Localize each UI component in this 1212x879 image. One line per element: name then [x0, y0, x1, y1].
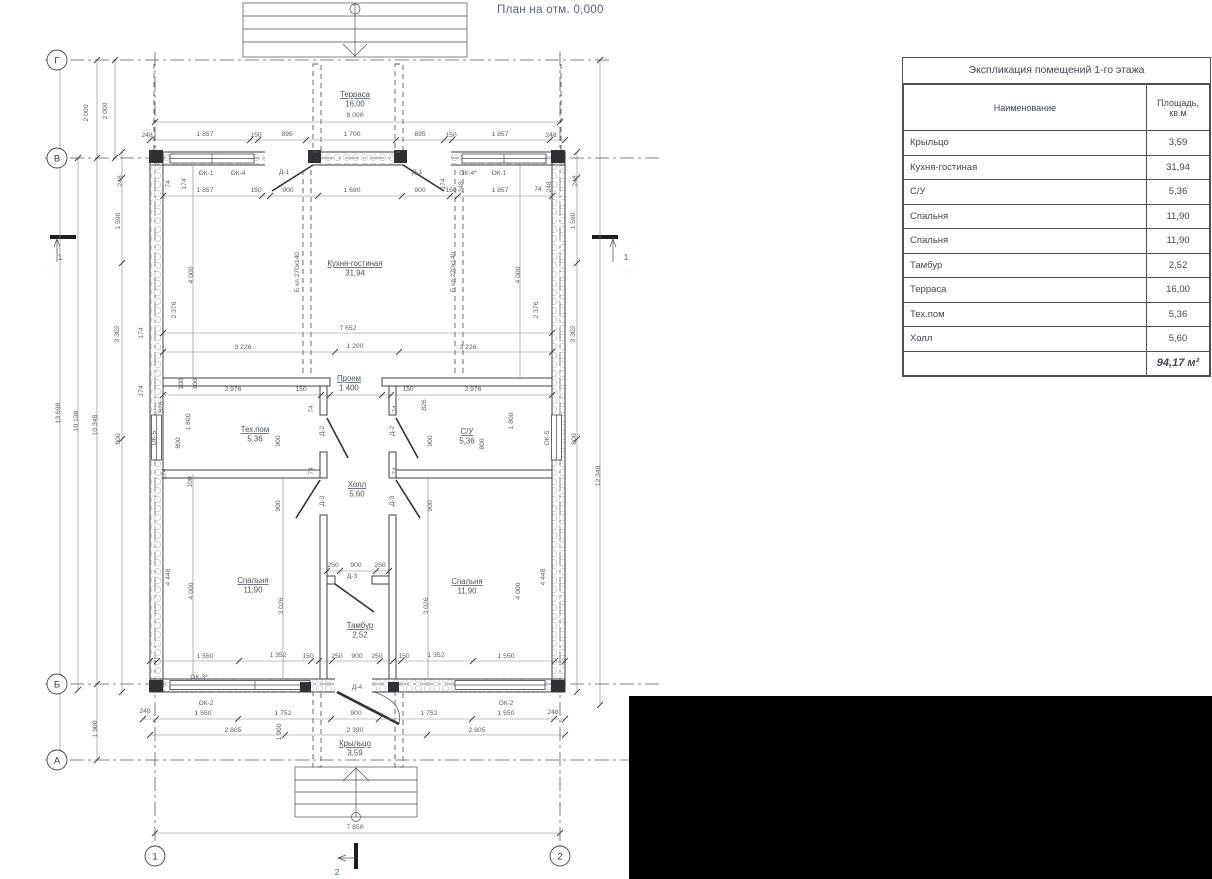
dim-label: 800 [115, 433, 122, 445]
dim-label: 895 [414, 131, 426, 138]
terrace-steps [243, 3, 467, 57]
door-d3-right [396, 480, 420, 518]
opening-tag: ОК-5 [544, 430, 551, 445]
table-row: Спальня11,90 [904, 229, 1210, 254]
door-d2-left [327, 418, 348, 458]
room-area: 5,60 [349, 490, 365, 499]
room-name: Спальня [237, 576, 268, 585]
section-number: 2 [335, 867, 340, 877]
dim-label: 826 [421, 399, 428, 411]
dimension-labels: 8 0002481 8571508951 7008951501 8572481 … [55, 102, 629, 877]
dim-label: 1 550 [497, 710, 514, 717]
opening-tag: Д-3 [389, 496, 396, 507]
section-number: 1 [58, 252, 63, 262]
dim-label: 2 976 [464, 386, 481, 393]
dim-label: 1 690 [343, 187, 360, 194]
dim-label: 250 [374, 562, 386, 569]
room-name: Спальня [451, 577, 482, 586]
room-area: 3,59 [347, 749, 362, 758]
dim-label: 1 590 [570, 212, 577, 229]
dim-label: 900 [351, 653, 363, 660]
dim-label: 248 [141, 132, 153, 139]
room-name: Тамбур [347, 621, 374, 630]
opening-tag: ОК-4 [231, 170, 246, 177]
axis-label: А [54, 756, 61, 767]
dim-label: 174 [161, 468, 168, 480]
room-area: 11,90 [458, 587, 478, 596]
dim-label: 900 [275, 500, 282, 512]
dim-label: 250 [327, 562, 339, 569]
dim-label: 4 000 [515, 582, 522, 599]
dim-label: 174 [440, 178, 447, 190]
drawing-sheet: План на отм. 0,000 [0, 0, 1212, 879]
dim-label: 2 000 [102, 102, 109, 119]
dim-label: 3 026 [423, 597, 430, 614]
dim-label: 900 [350, 710, 362, 717]
dim-label: 1 550 [194, 710, 211, 717]
dim-label: 900 [275, 435, 282, 447]
opening-tag: ОК-4* [459, 170, 477, 177]
dim-label: 248 [139, 708, 151, 715]
dim-label: 8 000 [346, 112, 363, 119]
dim-label: 2 000 [83, 104, 90, 121]
dim-label: 1 857 [196, 187, 213, 194]
cell-name: Тамбур [904, 253, 1147, 278]
dim-label: 900 [427, 435, 434, 447]
table-row: Холл5,60 [904, 327, 1210, 352]
room-name: Проем [337, 374, 361, 383]
dim-label: 12 348 [595, 465, 602, 486]
opening-tag: ОК-2 [199, 700, 214, 707]
room-area: 11,90 [244, 586, 264, 595]
cell-area: 11,90 [1147, 204, 1210, 229]
opening-tag: ОК-1 [199, 170, 214, 177]
cell-area: 3,59 [1147, 131, 1210, 156]
dim-label: 10 198 [73, 410, 80, 431]
dim-label: 248 [572, 175, 579, 187]
table-row: Кухня-гостиная31,94 [904, 155, 1210, 180]
dim-label: 74 [392, 405, 399, 413]
dim-label: 3 302 [570, 325, 577, 342]
column-header-area: Площадь, кв.м [1147, 85, 1210, 131]
room-area: 31,94 [345, 269, 365, 278]
room-name: Тех.пом [241, 425, 269, 434]
dim-label: 7 850 [346, 824, 363, 831]
dim-label: 826 [158, 401, 165, 413]
dim-label: 3 226 [459, 344, 476, 351]
opening-tag: ОК-5 [151, 430, 158, 445]
dim-label: 150 [302, 653, 314, 660]
room-area: 16,00 [345, 100, 365, 109]
table-row: Тех.пом5,36 [904, 302, 1210, 327]
opening-tag: Д-4 [352, 684, 363, 691]
door-d3-left [296, 480, 320, 518]
explication-rows: Крыльцо3,59Кухня-гостиная31,94С/У5,36Спа… [904, 131, 1210, 352]
axis-label: 1 [152, 852, 157, 863]
dim-label: 1 550 [497, 653, 514, 660]
dim-label: 1 752 [274, 710, 291, 717]
table-row: Спальня11,90 [904, 204, 1210, 229]
dim-label: 1 352 [427, 652, 444, 659]
section-markers [50, 237, 618, 869]
room-name: Кухня-гостиная [327, 259, 382, 268]
dim-label: 150 [295, 386, 307, 393]
room-area: 5,36 [247, 435, 262, 444]
opening-tag: ОК-1 [492, 170, 507, 177]
dim-label: 100 [192, 378, 199, 390]
redacted-area [629, 696, 1212, 879]
dim-label: 10 348 [92, 414, 99, 435]
dim-label: 1 352 [269, 652, 286, 659]
opening-tag: Б кл 270х140 [450, 252, 457, 292]
cell-name: Спальня [904, 204, 1147, 229]
axis-label: Г [54, 56, 59, 67]
dim-label: 248 [458, 181, 465, 193]
opening-tag: Д-3 [319, 496, 326, 507]
opening-tag: ОК-2 [499, 700, 514, 707]
dim-label: 4 000 [188, 266, 195, 283]
dim-label: 174 [138, 327, 145, 339]
opening-tag: Б кл 270х140 [294, 252, 301, 292]
column-header-name: Наименование [904, 85, 1147, 131]
dim-label: 1 550 [196, 653, 213, 660]
cell-name: Холл [904, 327, 1147, 352]
dim-label: 1 900 [92, 720, 99, 737]
dimension-lines [60, 60, 600, 833]
dim-label: 1 200 [346, 343, 363, 350]
table-row: Терраса16,00 [904, 278, 1210, 303]
dim-label: 800 [571, 433, 578, 445]
dim-label: 3 226 [234, 344, 251, 351]
axis-label: Б [54, 680, 60, 691]
dim-label: 248 [117, 175, 124, 187]
room-area: 2,52 [352, 631, 367, 640]
total-empty-cell [904, 351, 1147, 376]
dim-label: 174 [181, 178, 188, 190]
total-area: 94,17 м² [1147, 351, 1210, 376]
dim-label: 100 [187, 476, 194, 488]
dim-label: 2 805 [468, 727, 485, 734]
dim-label: 895 [281, 131, 293, 138]
dim-label: 1 857 [491, 131, 508, 138]
table-row: С/У5,36 [904, 180, 1210, 205]
door-d2-right [396, 418, 418, 458]
dim-label: 174 [138, 385, 145, 397]
opening-tag: Д-3 [347, 573, 358, 580]
table-title: Экспликация помещений 1-го этажа [903, 58, 1210, 84]
cell-area: 16,00 [1147, 278, 1210, 303]
section-number: 1 [624, 252, 629, 262]
dim-label: 1 900 [276, 723, 283, 740]
dim-label: 1 752 [420, 710, 437, 717]
dim-label: 4 000 [188, 582, 195, 599]
table-row: Тамбур2,52 [904, 253, 1210, 278]
room-name: Терраса [340, 90, 371, 99]
dim-label: 2 376 [533, 301, 540, 318]
cell-area: 31,94 [1147, 155, 1210, 180]
dim-label: 2 805 [224, 727, 241, 734]
dim-label: 2 390 [346, 727, 363, 734]
dim-label: 74 [308, 467, 315, 475]
dim-label: 4 448 [540, 568, 547, 585]
cell-name: Спальня [904, 229, 1147, 254]
dim-label: 248 [546, 181, 553, 193]
dim-label: 150 [445, 187, 457, 194]
dim-label: 800 [479, 438, 486, 450]
axis-label: В [54, 154, 60, 165]
dim-label: 1 700 [343, 131, 360, 138]
door-d3-tambour [335, 584, 374, 612]
cell-area: 5,36 [1147, 180, 1210, 205]
dim-label: 150 [402, 386, 414, 393]
dim-label: 3 302 [114, 325, 121, 342]
cell-area: 2,52 [1147, 253, 1210, 278]
dim-label: 248 [547, 709, 559, 716]
dim-label: 1 857 [491, 187, 508, 194]
dim-label: 1 590 [115, 212, 122, 229]
opening-tag: ОК-3* [190, 674, 208, 681]
dim-label: 1 800 [508, 412, 515, 429]
cell-area: 5,60 [1147, 327, 1210, 352]
dim-label: 4 448 [165, 568, 172, 585]
explication-table: Экспликация помещений 1-го этажа Наимено… [902, 57, 1211, 377]
dim-label: 150 [250, 187, 262, 194]
dim-label: 1 857 [196, 131, 213, 138]
cell-name: Крыльцо [904, 131, 1147, 156]
dim-label: 1 800 [185, 413, 192, 430]
opening-tag: Д-2 [319, 426, 326, 437]
cell-name: Терраса [904, 278, 1147, 303]
dim-label: 74 [392, 467, 399, 475]
dim-label: 250 [371, 653, 383, 660]
opening-tag: Д-2 [389, 426, 396, 437]
dim-label: 74 [534, 186, 542, 193]
opening-tag: Д-1 [412, 169, 423, 176]
dim-label: 150 [250, 132, 262, 139]
axis-label: 2 [557, 852, 562, 863]
porch-steps [295, 767, 417, 822]
dim-label: 250 [331, 653, 343, 660]
room-name: Холл [348, 480, 367, 489]
opening-tag: Д-1 [279, 169, 290, 176]
cell-name: Кухня-гостиная [904, 155, 1147, 180]
room-area: 1 400 [339, 384, 359, 393]
cell-name: С/У [904, 180, 1147, 205]
dim-label: 150 [398, 653, 410, 660]
room-name: С/У [461, 427, 474, 436]
dim-label: 100 [178, 378, 185, 390]
cell-name: Тех.пом [904, 302, 1147, 327]
dim-label: 74 [165, 180, 172, 188]
table-row: Крыльцо3,59 [904, 131, 1210, 156]
dim-label: 2 376 [171, 301, 178, 318]
dim-label: 150 [445, 132, 457, 139]
dim-label: 248 [545, 132, 557, 139]
room-name: Крыльцо [339, 739, 371, 748]
dim-label: 900 [282, 187, 294, 194]
total-row: 94,17 м² [904, 351, 1210, 376]
dim-label: 4 000 [515, 266, 522, 283]
cell-area: 11,90 [1147, 229, 1210, 254]
dim-label: 7 652 [339, 325, 356, 332]
room-area: 5,36 [459, 437, 474, 446]
dim-label: 2 976 [224, 386, 241, 393]
dim-label: 800 [175, 437, 182, 449]
dim-label: 13 698 [55, 402, 62, 423]
dim-label: 900 [427, 500, 434, 512]
cell-area: 5,36 [1147, 302, 1210, 327]
dim-label: 900 [350, 562, 362, 569]
dim-label: 900 [414, 187, 426, 194]
dim-label: 74 [308, 405, 315, 413]
floor-plan: Терраса16,00Кухня-гостиная31,94Тех.пом5,… [0, 0, 700, 879]
dim-label: 3 026 [278, 597, 285, 614]
